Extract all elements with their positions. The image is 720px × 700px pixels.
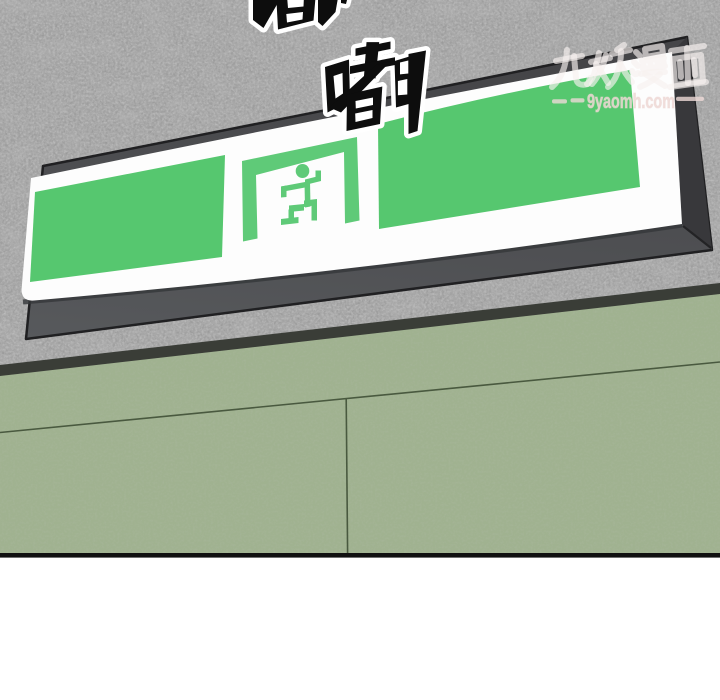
svg-text:9yaomh.com: 9yaomh.com xyxy=(587,91,675,113)
